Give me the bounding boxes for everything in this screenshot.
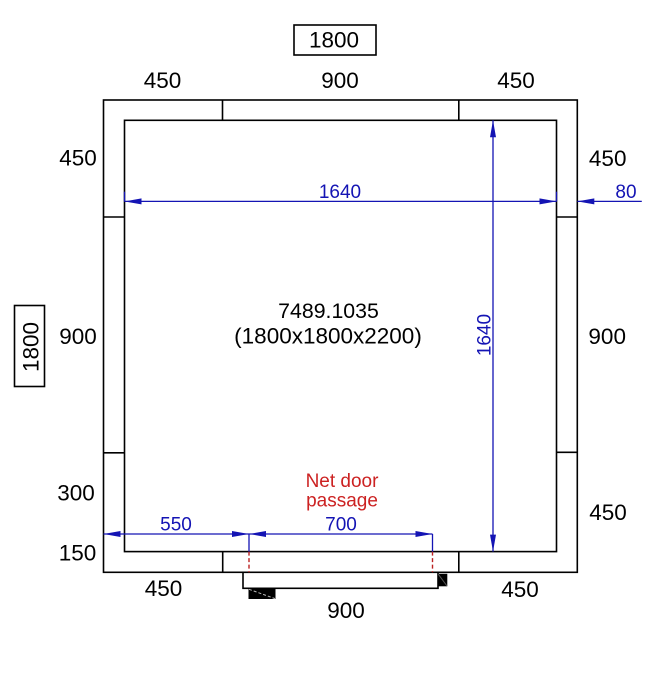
svg-text:Net door: Net door — [306, 471, 380, 492]
svg-text:450: 450 — [59, 145, 97, 170]
svg-text:450: 450 — [144, 68, 182, 93]
svg-text:150: 150 — [59, 541, 97, 566]
svg-text:550: 550 — [160, 515, 192, 536]
svg-text:7489.1035: 7489.1035 — [278, 299, 379, 323]
svg-text:450: 450 — [501, 577, 539, 602]
svg-text:80: 80 — [615, 182, 636, 203]
svg-text:450: 450 — [497, 68, 535, 93]
svg-text:1640: 1640 — [319, 182, 361, 203]
svg-text:passage: passage — [306, 491, 378, 512]
svg-text:450: 450 — [589, 500, 627, 525]
svg-text:900: 900 — [327, 598, 365, 623]
svg-text:900: 900 — [59, 324, 97, 349]
svg-text:1800: 1800 — [309, 28, 359, 53]
svg-text:1800: 1800 — [19, 322, 44, 372]
svg-text:(1800x1800x2200): (1800x1800x2200) — [234, 324, 422, 349]
svg-text:1640: 1640 — [475, 314, 496, 356]
svg-text:300: 300 — [57, 481, 95, 506]
svg-text:450: 450 — [589, 146, 627, 171]
svg-text:700: 700 — [325, 515, 357, 536]
svg-text:900: 900 — [321, 68, 359, 93]
svg-text:900: 900 — [588, 324, 626, 349]
svg-text:450: 450 — [145, 576, 183, 601]
